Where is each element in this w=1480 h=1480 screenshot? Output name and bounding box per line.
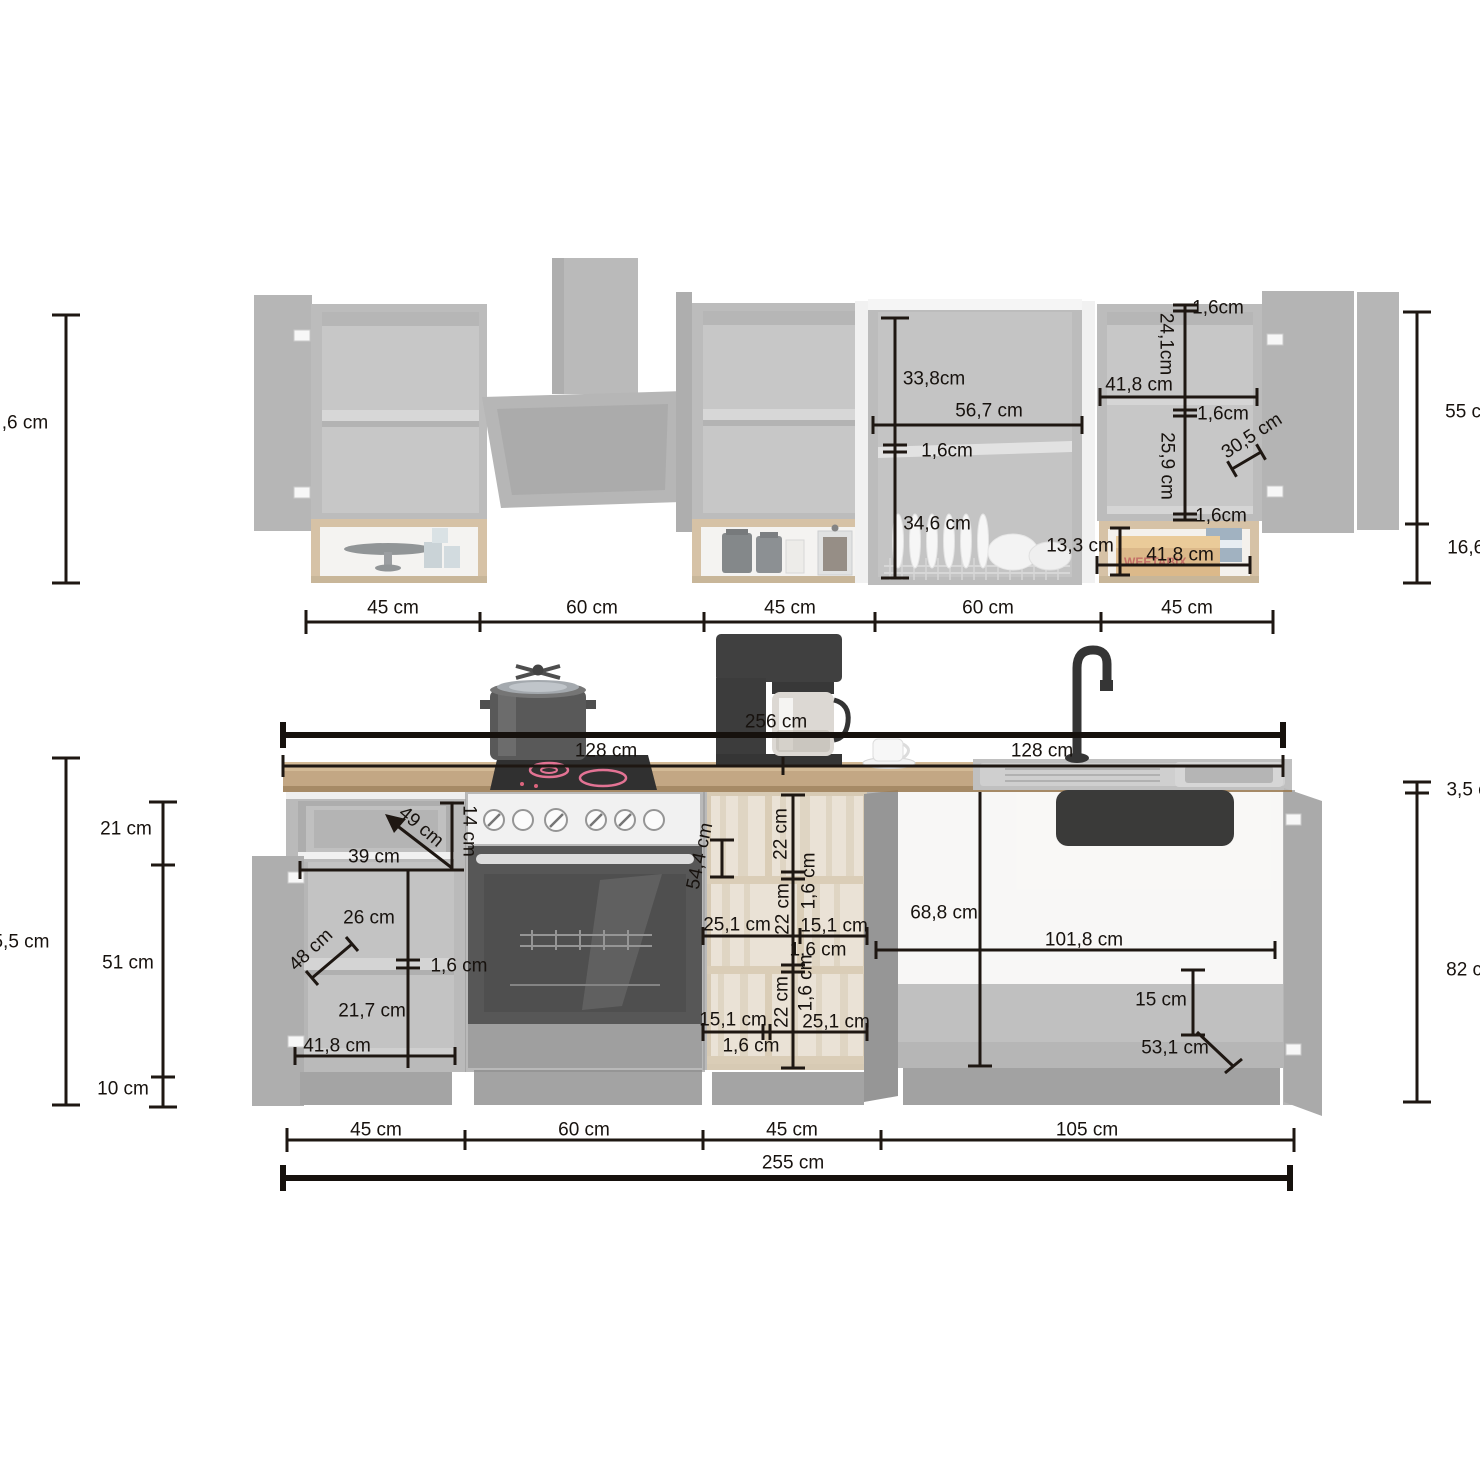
oven-handle	[476, 854, 694, 864]
hinge-icon	[288, 1036, 304, 1047]
base-cabinet-left	[252, 792, 466, 1106]
shelf	[322, 410, 479, 421]
plinth	[474, 1070, 702, 1105]
hinge-icon	[294, 330, 310, 341]
plinth	[903, 1068, 1280, 1105]
sink-bowl	[1056, 790, 1234, 846]
diagram-svg: WEETABIX	[0, 0, 1480, 1480]
wall-cabinet-mid	[676, 292, 868, 532]
open-shelf-left	[311, 519, 487, 583]
open-door	[864, 790, 898, 1102]
wall-cabinet-left	[254, 295, 487, 531]
wall-cabinet-right	[1097, 291, 1399, 533]
jar	[722, 533, 752, 573]
dim-wall-right-height	[1403, 312, 1431, 583]
oven	[465, 792, 705, 1105]
hob	[490, 755, 657, 790]
cups	[424, 542, 442, 568]
hinge-icon	[1286, 814, 1301, 825]
wall-cabinet-dishrack	[855, 299, 1095, 585]
dim-wall-widths	[306, 610, 1273, 634]
extractor-hood	[482, 258, 685, 508]
dim-base-total	[283, 1165, 1290, 1191]
coffee-maker	[716, 634, 848, 766]
faucet	[1065, 650, 1113, 763]
dim-base-widths	[287, 1128, 1294, 1152]
kitchen-dimension-diagram-page: { "diagram": { "type": "kitchen-dimensio…	[0, 0, 1480, 1480]
open-door	[1284, 788, 1322, 1116]
hinge-icon	[288, 872, 304, 883]
hinge-icon	[1286, 1044, 1301, 1055]
cereal-brand-text: WEETABIX	[1124, 555, 1186, 569]
open-shelf-mid	[692, 519, 868, 583]
plinth	[712, 1072, 864, 1105]
open-door	[252, 856, 304, 1106]
dim-wall-left-height	[52, 315, 80, 583]
diagram-canvas: WEETABIX	[0, 0, 1480, 1480]
sink-top	[973, 759, 1292, 790]
cup-and-saucer	[863, 739, 915, 769]
plinth	[300, 1072, 452, 1105]
cooking-pot	[480, 665, 596, 761]
divider	[765, 796, 772, 876]
hinge-icon	[1267, 334, 1283, 345]
hinge-icon	[1267, 486, 1283, 497]
hinge-icon	[294, 487, 310, 498]
